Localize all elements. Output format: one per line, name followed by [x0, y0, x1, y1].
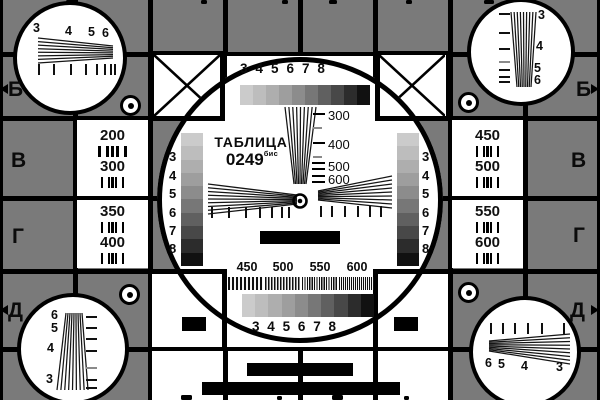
frequency-value-label: 350	[100, 204, 125, 220]
row-arrow-icon	[591, 305, 599, 315]
bullseye-target-icon	[458, 92, 479, 113]
grayscale-step	[397, 173, 419, 186]
frequency-value-label: 400	[100, 235, 125, 251]
black-reference-rect	[394, 317, 418, 331]
grayscale-step	[292, 85, 305, 105]
target-dot	[466, 100, 472, 106]
left-column-cell-2: 350 400	[77, 200, 148, 268]
tick-mark	[541, 323, 543, 334]
scale-digit: 8	[317, 62, 325, 76]
grayscale-step	[181, 239, 203, 252]
row-label-left: Д	[8, 300, 23, 321]
grayscale-step	[240, 85, 253, 105]
grayscale-step	[361, 294, 374, 317]
frequency-burst-pattern	[101, 222, 125, 233]
reference-bar-long	[202, 382, 400, 395]
tick-mark	[499, 69, 510, 71]
tick-mark	[514, 323, 516, 334]
tick-mark	[369, 206, 371, 217]
tick-mark	[86, 367, 97, 369]
scale-digit: 4	[267, 320, 275, 334]
tick-mark	[499, 48, 510, 50]
tick-mark	[499, 81, 510, 83]
edge-glyph-fragment	[406, 0, 412, 4]
grayscale-step	[268, 294, 281, 317]
grayscale-step	[321, 294, 334, 317]
tick-mark	[271, 207, 273, 218]
frequency-burst-pattern	[476, 146, 500, 157]
scale-digit: 5	[271, 62, 279, 76]
frequency-burst-pattern	[98, 146, 127, 157]
frequency-value-label: 550	[475, 204, 500, 220]
tick-mark	[110, 64, 112, 75]
tick-mark	[380, 206, 382, 217]
multiburst-segment	[265, 277, 300, 290]
corner-wedge-digit: 4	[521, 360, 528, 373]
row-label-right: Г	[573, 225, 585, 246]
bullseye-target-icon	[120, 95, 141, 116]
frequency-value-label: 450	[475, 128, 500, 144]
wedge-tick	[312, 181, 325, 183]
wedge-tick	[312, 168, 325, 170]
row-label-left: Г	[12, 226, 24, 247]
grayscale-step	[181, 226, 203, 239]
tick-mark	[38, 64, 40, 75]
card-number-suffix: бис	[264, 149, 278, 158]
cell-border-segment	[375, 269, 450, 274]
corner-wedge-digit: 6	[485, 357, 492, 370]
left-column-cell-1: 200 300	[77, 120, 148, 196]
target-dot	[128, 103, 134, 109]
grayscale-step	[397, 213, 419, 226]
burst-frequency-label: 450	[232, 261, 262, 274]
tick-mark	[527, 323, 529, 334]
edge-glyph-fragment	[282, 0, 288, 4]
scale-digit: 6	[422, 206, 429, 219]
tick-mark	[563, 323, 565, 334]
tick-mark	[490, 323, 492, 334]
corner-wedge-digit: 6	[51, 309, 58, 322]
cell-border-segment	[150, 116, 225, 121]
scale-digit: 3	[252, 320, 260, 334]
cell-border-segment	[375, 52, 380, 118]
frequency-burst-pattern	[476, 253, 500, 264]
scale-digit: 8	[422, 242, 429, 255]
cell-border-segment	[150, 269, 225, 274]
grayscale-step	[334, 294, 347, 317]
black-level-bar	[260, 231, 340, 244]
corner-wedge-digit: 3	[556, 361, 563, 374]
corner-wedge-digit: 6	[534, 74, 541, 87]
row-label-right: Д	[570, 300, 585, 321]
tick-mark	[245, 207, 247, 218]
scale-digit: 6	[298, 320, 306, 334]
grayscale-step	[181, 160, 203, 173]
grayscale-step	[397, 160, 419, 173]
grayscale-digit-row-bottom: 3 4 5 6 7 8	[252, 320, 336, 334]
tick-mark	[320, 206, 322, 217]
grayscale-digit-row-top: 3 4 5 6 7 8	[240, 62, 325, 76]
row-label-left: Б	[8, 79, 23, 100]
tick-mark	[499, 76, 510, 78]
grayscale-step	[266, 85, 279, 105]
tick-mark	[281, 207, 283, 218]
burst-frequency-label: 550	[305, 261, 335, 274]
frequency-burst-pattern	[476, 177, 500, 188]
corner-wedge-digit: 4	[47, 342, 54, 355]
row-label-right: Б	[576, 79, 591, 100]
wedge-frequency-label: 400	[328, 138, 350, 151]
grayscale-step	[357, 85, 370, 105]
grayscale-strip-right	[397, 133, 419, 266]
scale-digit: 6	[169, 206, 176, 219]
multiburst-segment	[339, 277, 374, 290]
multiburst-bar	[228, 277, 374, 290]
tick-mark	[344, 206, 346, 217]
edge-glyph-fragment	[332, 395, 343, 400]
cell-border-segment	[375, 116, 450, 121]
edge-glyph-fragment	[277, 396, 282, 400]
grayscale-step	[397, 186, 419, 199]
corner-wedge-digit: 4	[65, 25, 72, 38]
grayscale-step	[344, 85, 357, 105]
right-column-cell-1: 450 500	[452, 120, 523, 196]
grayscale-step	[397, 199, 419, 212]
grayscale-step	[318, 85, 331, 105]
tick-mark	[288, 207, 290, 218]
scale-digit: 8	[169, 242, 176, 255]
corner-circle-bottom-left	[17, 293, 129, 400]
grayscale-step	[331, 85, 344, 105]
corner-wedge-digit: 4	[536, 40, 543, 53]
grayscale-step	[242, 294, 255, 317]
tick-mark	[53, 64, 55, 75]
grayscale-step	[397, 253, 419, 266]
frequency-value-label: 200	[100, 128, 125, 144]
black-reference-rect	[182, 317, 206, 331]
bullseye-target-icon	[119, 284, 140, 305]
corner-wedge-digit: 5	[88, 26, 95, 39]
tick-mark	[86, 338, 97, 340]
scale-digit: 7	[422, 224, 429, 237]
card-title: ТАБЛИЦА	[213, 135, 289, 149]
grayscale-step	[397, 133, 419, 146]
right-column-cell-2: 550 600	[452, 200, 523, 268]
corner-wedge-digit: 3	[46, 373, 53, 386]
row-arrow-icon	[0, 84, 8, 94]
frequency-value-label: 300	[100, 159, 125, 175]
scale-digit: 4	[255, 62, 263, 76]
edge-glyph-fragment	[329, 0, 337, 4]
tick-mark	[86, 327, 97, 329]
corner-wedge-digit: 5	[51, 322, 58, 335]
frequency-burst-pattern	[101, 253, 125, 264]
grayscale-step	[255, 294, 268, 317]
tick-mark	[86, 316, 97, 318]
tick-mark	[259, 207, 261, 218]
bullseye-target-icon	[458, 282, 479, 303]
cell-border-segment	[222, 269, 227, 349]
row-arrow-icon	[0, 305, 8, 315]
scale-digit: 4	[422, 169, 429, 182]
wedge-tick-minor	[313, 156, 322, 158]
burst-frequency-label: 500	[268, 261, 298, 274]
frequency-value-label: 500	[475, 159, 500, 175]
multiburst-segment	[228, 277, 263, 290]
scale-digit: 8	[328, 320, 336, 334]
grayscale-step-bar-bottom	[242, 294, 374, 317]
scale-digit: 7	[313, 320, 321, 334]
tick-mark	[357, 206, 359, 217]
tick-mark	[499, 61, 510, 63]
wedge-tick	[313, 113, 325, 115]
cell-border-segment	[220, 52, 225, 118]
tick-mark	[86, 387, 97, 389]
corner-wedge-digit: 5	[498, 358, 505, 371]
tick-mark	[104, 64, 106, 75]
scale-digit: 5	[169, 187, 176, 200]
tick-mark	[85, 64, 87, 75]
tick-mark	[331, 206, 333, 217]
row-arrow-icon	[591, 84, 599, 94]
edge-glyph-fragment	[201, 0, 207, 4]
grayscale-strip-left	[181, 133, 203, 266]
scale-digit: 3	[240, 62, 248, 76]
grayscale-step	[348, 294, 361, 317]
corner-wedge-digit: 3	[538, 9, 545, 22]
corner-circle-bottom-right	[469, 296, 581, 400]
burst-frequency-label: 600	[342, 261, 372, 274]
row-label-left: В	[11, 150, 26, 171]
wedge-frequency-label: 300	[328, 109, 350, 122]
tick-mark	[114, 64, 116, 75]
tick-mark	[228, 207, 230, 218]
scale-digit: 3	[169, 150, 176, 163]
tick-mark	[502, 323, 504, 334]
grayscale-step	[181, 253, 203, 266]
corner-circle-top-right	[467, 0, 575, 106]
corner-wedge-digit: 3	[33, 22, 40, 35]
frequency-value-label: 600	[475, 235, 500, 251]
scale-digit: 7	[169, 224, 176, 237]
scale-digit: 5	[422, 187, 429, 200]
multiburst-segment	[302, 277, 337, 290]
edge-glyph-fragment	[484, 0, 494, 4]
corner-circle-top-left	[13, 1, 127, 115]
target-dot	[466, 290, 472, 296]
card-number-value: 0249	[226, 150, 264, 169]
scale-digit: 5	[283, 320, 291, 334]
edge-glyph-fragment	[66, 0, 78, 4]
grayscale-step	[181, 146, 203, 159]
reference-bar-short	[247, 363, 353, 376]
scale-digit: 6	[286, 62, 294, 76]
grayscale-step	[181, 173, 203, 186]
tick-mark	[499, 13, 510, 15]
wedge-tick	[312, 175, 325, 177]
grayscale-step	[181, 213, 203, 226]
grayscale-step	[308, 294, 321, 317]
grayscale-step	[282, 294, 295, 317]
grayscale-step	[397, 226, 419, 239]
wedge-tick	[313, 142, 325, 144]
frequency-burst-pattern	[476, 222, 500, 233]
wedge-tick	[312, 162, 325, 164]
tick-mark	[96, 64, 98, 75]
grayscale-step	[181, 186, 203, 199]
tick-mark	[499, 32, 510, 34]
tick-mark	[211, 207, 213, 218]
tick-mark	[86, 350, 97, 352]
scale-digit: 4	[169, 169, 176, 182]
wedge-frequency-label: 600	[328, 173, 350, 186]
target-dot	[127, 292, 133, 298]
grayscale-step	[397, 239, 419, 252]
tick-mark	[86, 379, 97, 381]
edge-glyph-fragment	[404, 396, 409, 400]
grayscale-step	[295, 294, 308, 317]
scale-digit: 3	[422, 150, 429, 163]
frequency-burst-pattern	[101, 177, 125, 188]
corner-wedge-digit: 6	[102, 27, 109, 40]
grayscale-step	[279, 85, 292, 105]
row-label-right: В	[571, 150, 586, 171]
grayscale-step	[253, 85, 266, 105]
edge-glyph-fragment	[181, 395, 192, 400]
grayscale-step	[305, 85, 318, 105]
grayscale-step	[181, 133, 203, 146]
grayscale-step	[397, 146, 419, 159]
grayscale-step-bar-top	[240, 85, 370, 105]
grayscale-step	[181, 199, 203, 212]
card-number: 0249бис	[220, 150, 284, 168]
scale-digit: 7	[302, 62, 310, 76]
wedge-tick-minor	[313, 127, 322, 129]
tick-mark	[70, 64, 72, 75]
test-card: 200 300 350 400 450 500 550 600	[0, 0, 600, 400]
